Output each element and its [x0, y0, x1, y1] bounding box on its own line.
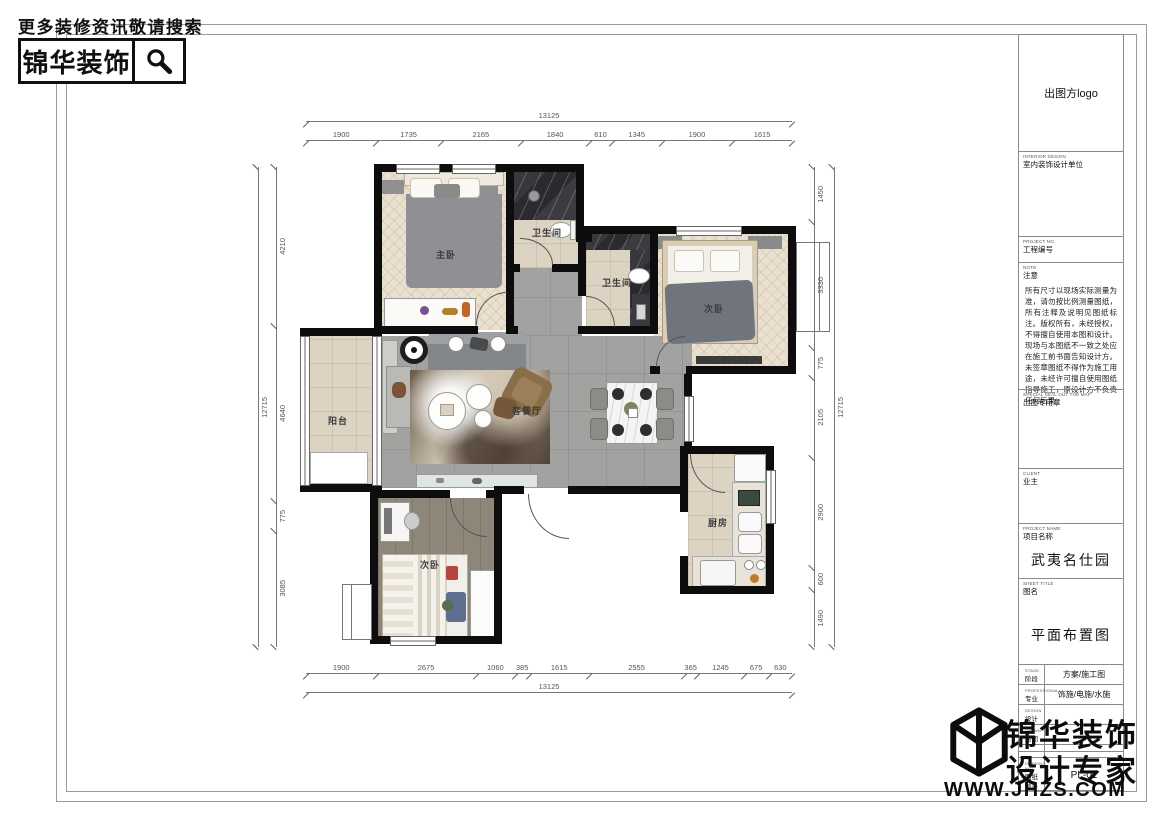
console-flowers [420, 306, 429, 315]
section-note: NOTE 注意 所有尺寸以现场实际测量为准，请勿按比例测量图纸，所有注释及说明见… [1019, 262, 1123, 389]
tv-shelf-bedroom2 [696, 356, 762, 364]
microtext: PROJECT NAME [1019, 524, 1123, 531]
wall [300, 328, 382, 336]
wall [684, 374, 692, 398]
microtext: INTERIOR DESIGN [1019, 152, 1123, 159]
note-text: 所有尺寸以现场实际测量为准，请勿按比例测量图纸，所有注释及说明见图纸标注。版权所… [1025, 285, 1117, 406]
project-name-value: 武夷名仕园 [1019, 550, 1123, 570]
dim-segment: 12715 [258, 167, 270, 647]
dim-segment: 775 [814, 348, 826, 377]
microtext: STAGE [1021, 666, 1042, 673]
window-bedroom2 [676, 226, 742, 236]
wall [568, 486, 688, 494]
magnifier-icon [144, 46, 174, 76]
field-label: 业主 [1019, 476, 1123, 487]
microtext: SHEET TITLE [1019, 579, 1123, 586]
dim-segment: 630 [769, 662, 792, 674]
label-master: 主卧 [436, 248, 456, 261]
master-bed-blanket [406, 194, 502, 288]
chair-bedroom3 [404, 512, 420, 530]
wall [578, 326, 656, 334]
kitchen-pot [750, 574, 759, 583]
stove [738, 490, 760, 506]
title-block: 出图方logo INTERIOR DESIGN 室内装饰设计单位 PROJECT… [1018, 34, 1124, 791]
dim-segment: 1615 [732, 129, 792, 141]
dim-right-total: 12715 [834, 167, 846, 647]
dim-segment: 1900 [306, 129, 376, 141]
dining-plate-2 [612, 424, 624, 436]
dim-segment: 12715 [834, 167, 846, 647]
field-label: 出图专用章 [1019, 397, 1123, 408]
label-bath1: 卫生间 [532, 226, 562, 239]
wall [552, 264, 584, 272]
section-logo: 出图方logo [1019, 35, 1123, 151]
wall [506, 164, 514, 334]
dim-top-total: 13125 [306, 110, 792, 122]
dining-chair-bl [590, 418, 608, 440]
dining-chair-tl [590, 388, 608, 410]
shower-head [528, 190, 540, 202]
field-label: 阶段 [1021, 673, 1042, 683]
dim-segment: 2105 [814, 378, 826, 458]
search-icon-cell [132, 41, 183, 81]
dim-segment: 1450 [814, 167, 826, 222]
brand-search-box: 锦华装饰 [18, 38, 186, 84]
microtext: PROJECT NO. [1019, 237, 1123, 244]
cube-logo-icon [946, 706, 1012, 778]
dim-segment: 1345 [612, 129, 662, 141]
balcony-cabinet [310, 452, 368, 484]
dim-segment: 1735 [376, 129, 440, 141]
field-label: 专业 [1021, 693, 1042, 703]
table-row-professional: PROFESSIONAL专业 饰施/电施/水施 [1019, 684, 1123, 704]
floor-hall [512, 268, 582, 336]
floor-bath1-shower [512, 172, 578, 220]
dim-segment: 2555 [589, 662, 684, 674]
issuer-logo-label: 出图方logo [1019, 85, 1123, 101]
wall [680, 446, 774, 454]
entry-console-decor2 [472, 478, 482, 484]
dim-segment: 600 [814, 568, 826, 591]
label-bedroom2: 次卧 [704, 302, 724, 315]
window-bedroom3 [390, 636, 436, 646]
dim-segment: 1840 [521, 129, 589, 141]
wall [680, 586, 774, 594]
bed2-pillow-left [674, 250, 704, 272]
wall [374, 326, 478, 334]
wall [650, 366, 660, 374]
wall [766, 520, 774, 594]
dim-segment: 4640 [276, 326, 288, 501]
brand-name: 锦华装饰 [21, 41, 132, 81]
wall-column [576, 226, 592, 242]
master-pillow-accent [434, 184, 460, 198]
dim-segment: 13125 [306, 681, 792, 693]
console-bottle [462, 302, 470, 317]
fridge [734, 454, 766, 482]
dim-bottom-segments: 1900 2675 1060 385 1615 2555 365 1245 67… [306, 662, 792, 674]
dining-plate-3 [640, 388, 652, 400]
bed3-red-item [446, 566, 458, 580]
sofa-bowl-right [490, 336, 506, 352]
wall [680, 446, 688, 512]
label-living: 客餐厅 [512, 404, 542, 417]
dim-segment: 4210 [276, 167, 288, 326]
section-project-no: PROJECT NO. 工程编号 [1019, 236, 1123, 262]
label-bath2: 卫生间 [602, 276, 632, 289]
wall [374, 164, 382, 334]
microtext: CLIENT [1019, 469, 1123, 476]
wall [686, 366, 796, 374]
dining-chair-tr [656, 388, 674, 410]
sink-bowl-1 [738, 512, 762, 532]
wall [506, 264, 520, 272]
console-bowl [442, 308, 458, 315]
microtext: PROFESSIONAL [1021, 686, 1042, 693]
sink-bath2 [636, 304, 646, 320]
dim-segment: 3330 [814, 222, 826, 348]
section-sheet-title: SHEET TITLE 图名 平面布置图 [1019, 578, 1123, 664]
dim-top-segments: 1900 1735 2165 1840 610 1345 1900 1615 [306, 129, 792, 141]
section-client: CLIENT 业主 [1019, 468, 1123, 523]
table-row-stage: STAGE阶段 方案/施工图 [1019, 664, 1123, 684]
dim-segment: 1245 [697, 662, 743, 674]
watermark-url: WWW.JHZS.COM [944, 779, 1126, 802]
field-value: 方案/施工图 [1045, 665, 1123, 684]
dim-segment: 1060 [476, 662, 515, 674]
section-project-name: PROJECT NAME 项目名称 武夷名仕园 [1019, 523, 1123, 578]
dim-segment: 2900 [814, 458, 826, 568]
microtext: NOTE [1019, 263, 1123, 270]
entry-console-decor1 [436, 478, 444, 483]
dining-centerpiece [628, 408, 638, 418]
dim-segment: 385 [515, 662, 529, 674]
dim-segment: 1615 [529, 662, 589, 674]
wall [650, 234, 658, 334]
search-hint: 更多装修资讯敬请搜索 [18, 13, 203, 38]
field-label: 注意 [1019, 270, 1123, 281]
floor-bath2-marble-top [586, 234, 650, 250]
dim-segment: 775 [276, 501, 288, 530]
balcony-sliding-door [372, 336, 382, 486]
wall [494, 490, 502, 644]
dim-segment: 610 [589, 129, 612, 141]
field-value: 饰施/电施/水施 [1045, 685, 1123, 704]
sheet-title-value: 平面布置图 [1019, 625, 1123, 645]
plant-pot [392, 382, 406, 398]
wall [766, 446, 774, 472]
window-master-2 [452, 164, 496, 174]
speaker-dot [411, 347, 417, 353]
dim-segment: 1900 [306, 662, 376, 674]
dim-left-segments: 4210 4640 775 3085 [276, 167, 288, 647]
field-label: 工程编号 [1019, 244, 1123, 255]
window-dining [684, 396, 694, 442]
field-label: 项目名称 [1019, 531, 1123, 542]
dim-segment: 2675 [376, 662, 475, 674]
curtain-box-left [382, 180, 404, 194]
window-master-1 [396, 164, 440, 174]
label-kitchen: 厨房 [708, 516, 728, 529]
dim-segment: 675 [744, 662, 769, 674]
dim-segment: 3085 [276, 531, 288, 648]
coffee-table-tray [440, 404, 454, 416]
burner-2 [756, 560, 766, 570]
bed2-pillow-right [710, 250, 740, 272]
dim-segment: 1900 [662, 129, 732, 141]
monitor-bedroom3 [384, 508, 392, 534]
dim-bottom-total: 13125 [306, 681, 792, 693]
wall [370, 490, 450, 498]
bed3-green-pillow [442, 600, 453, 611]
section-interior-design: INTERIOR DESIGN 室内装饰设计单位 [1019, 151, 1123, 236]
dim-segment: 365 [684, 662, 698, 674]
dim-right-segments: 1450 3330 775 2105 2900 600 1490 [814, 167, 826, 647]
section-seal: SPECIAL SEAL OUT THE MAP 出图专用章 [1019, 389, 1123, 468]
field-label: 室内装饰设计单位 [1019, 159, 1123, 170]
kitchen-appliance [700, 560, 736, 586]
window-balcony [300, 336, 310, 486]
wall [788, 226, 796, 374]
sink-bowl-2 [738, 534, 762, 554]
window-kitchen [766, 470, 776, 524]
bed3-pillows [383, 555, 413, 639]
field-label: 图名 [1019, 586, 1123, 597]
wardrobe-bedroom3 [470, 570, 496, 638]
dim-segment: 1490 [814, 590, 826, 647]
wall [370, 484, 378, 498]
dining-plate-1 [612, 388, 624, 400]
coffee-table-medium [466, 384, 492, 410]
dim-segment: 13125 [306, 110, 792, 122]
dim-segment: 2165 [441, 129, 521, 141]
label-bedroom3: 次卧 [420, 558, 440, 571]
sofa-bowl-left [448, 336, 464, 352]
dining-chair-br [656, 418, 674, 440]
coffee-table-small [474, 410, 492, 428]
drawing-sheet: 更多装修资讯敬请搜索 锦华装饰 [0, 0, 1158, 818]
microtext: SPECIAL SEAL OUT THE MAP [1019, 390, 1123, 397]
label-balcony: 阳台 [328, 414, 348, 427]
burner-1 [744, 560, 754, 570]
bay-window-left-bottom [342, 584, 372, 640]
dining-plate-4 [640, 424, 652, 436]
dim-left-total: 12715 [258, 167, 270, 647]
